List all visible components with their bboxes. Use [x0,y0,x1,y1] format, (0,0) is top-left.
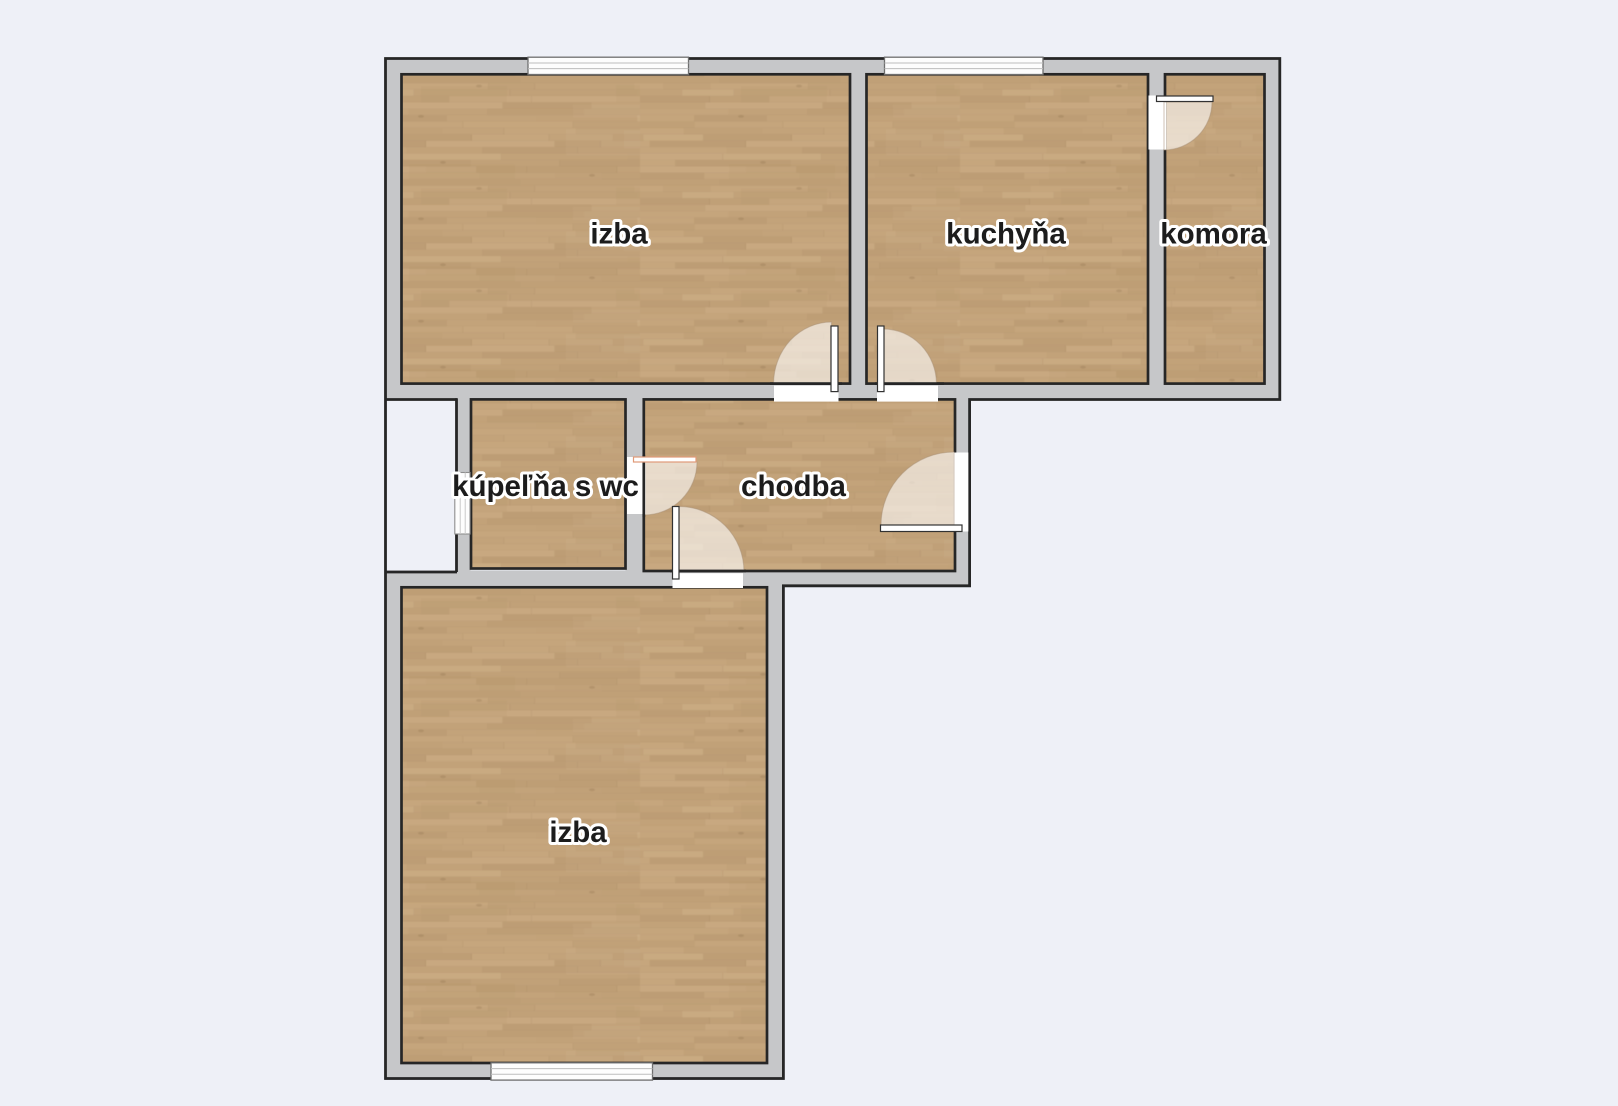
svg-text:kuchyňa: kuchyňa [946,218,1066,251]
svg-text:komora: komora [1160,218,1267,251]
svg-text:chodba: chodba [741,470,846,503]
svg-text:izba: izba [590,218,648,251]
svg-text:kúpeľňa s wc: kúpeľňa s wc [452,470,639,503]
svg-text:izba: izba [549,816,607,849]
